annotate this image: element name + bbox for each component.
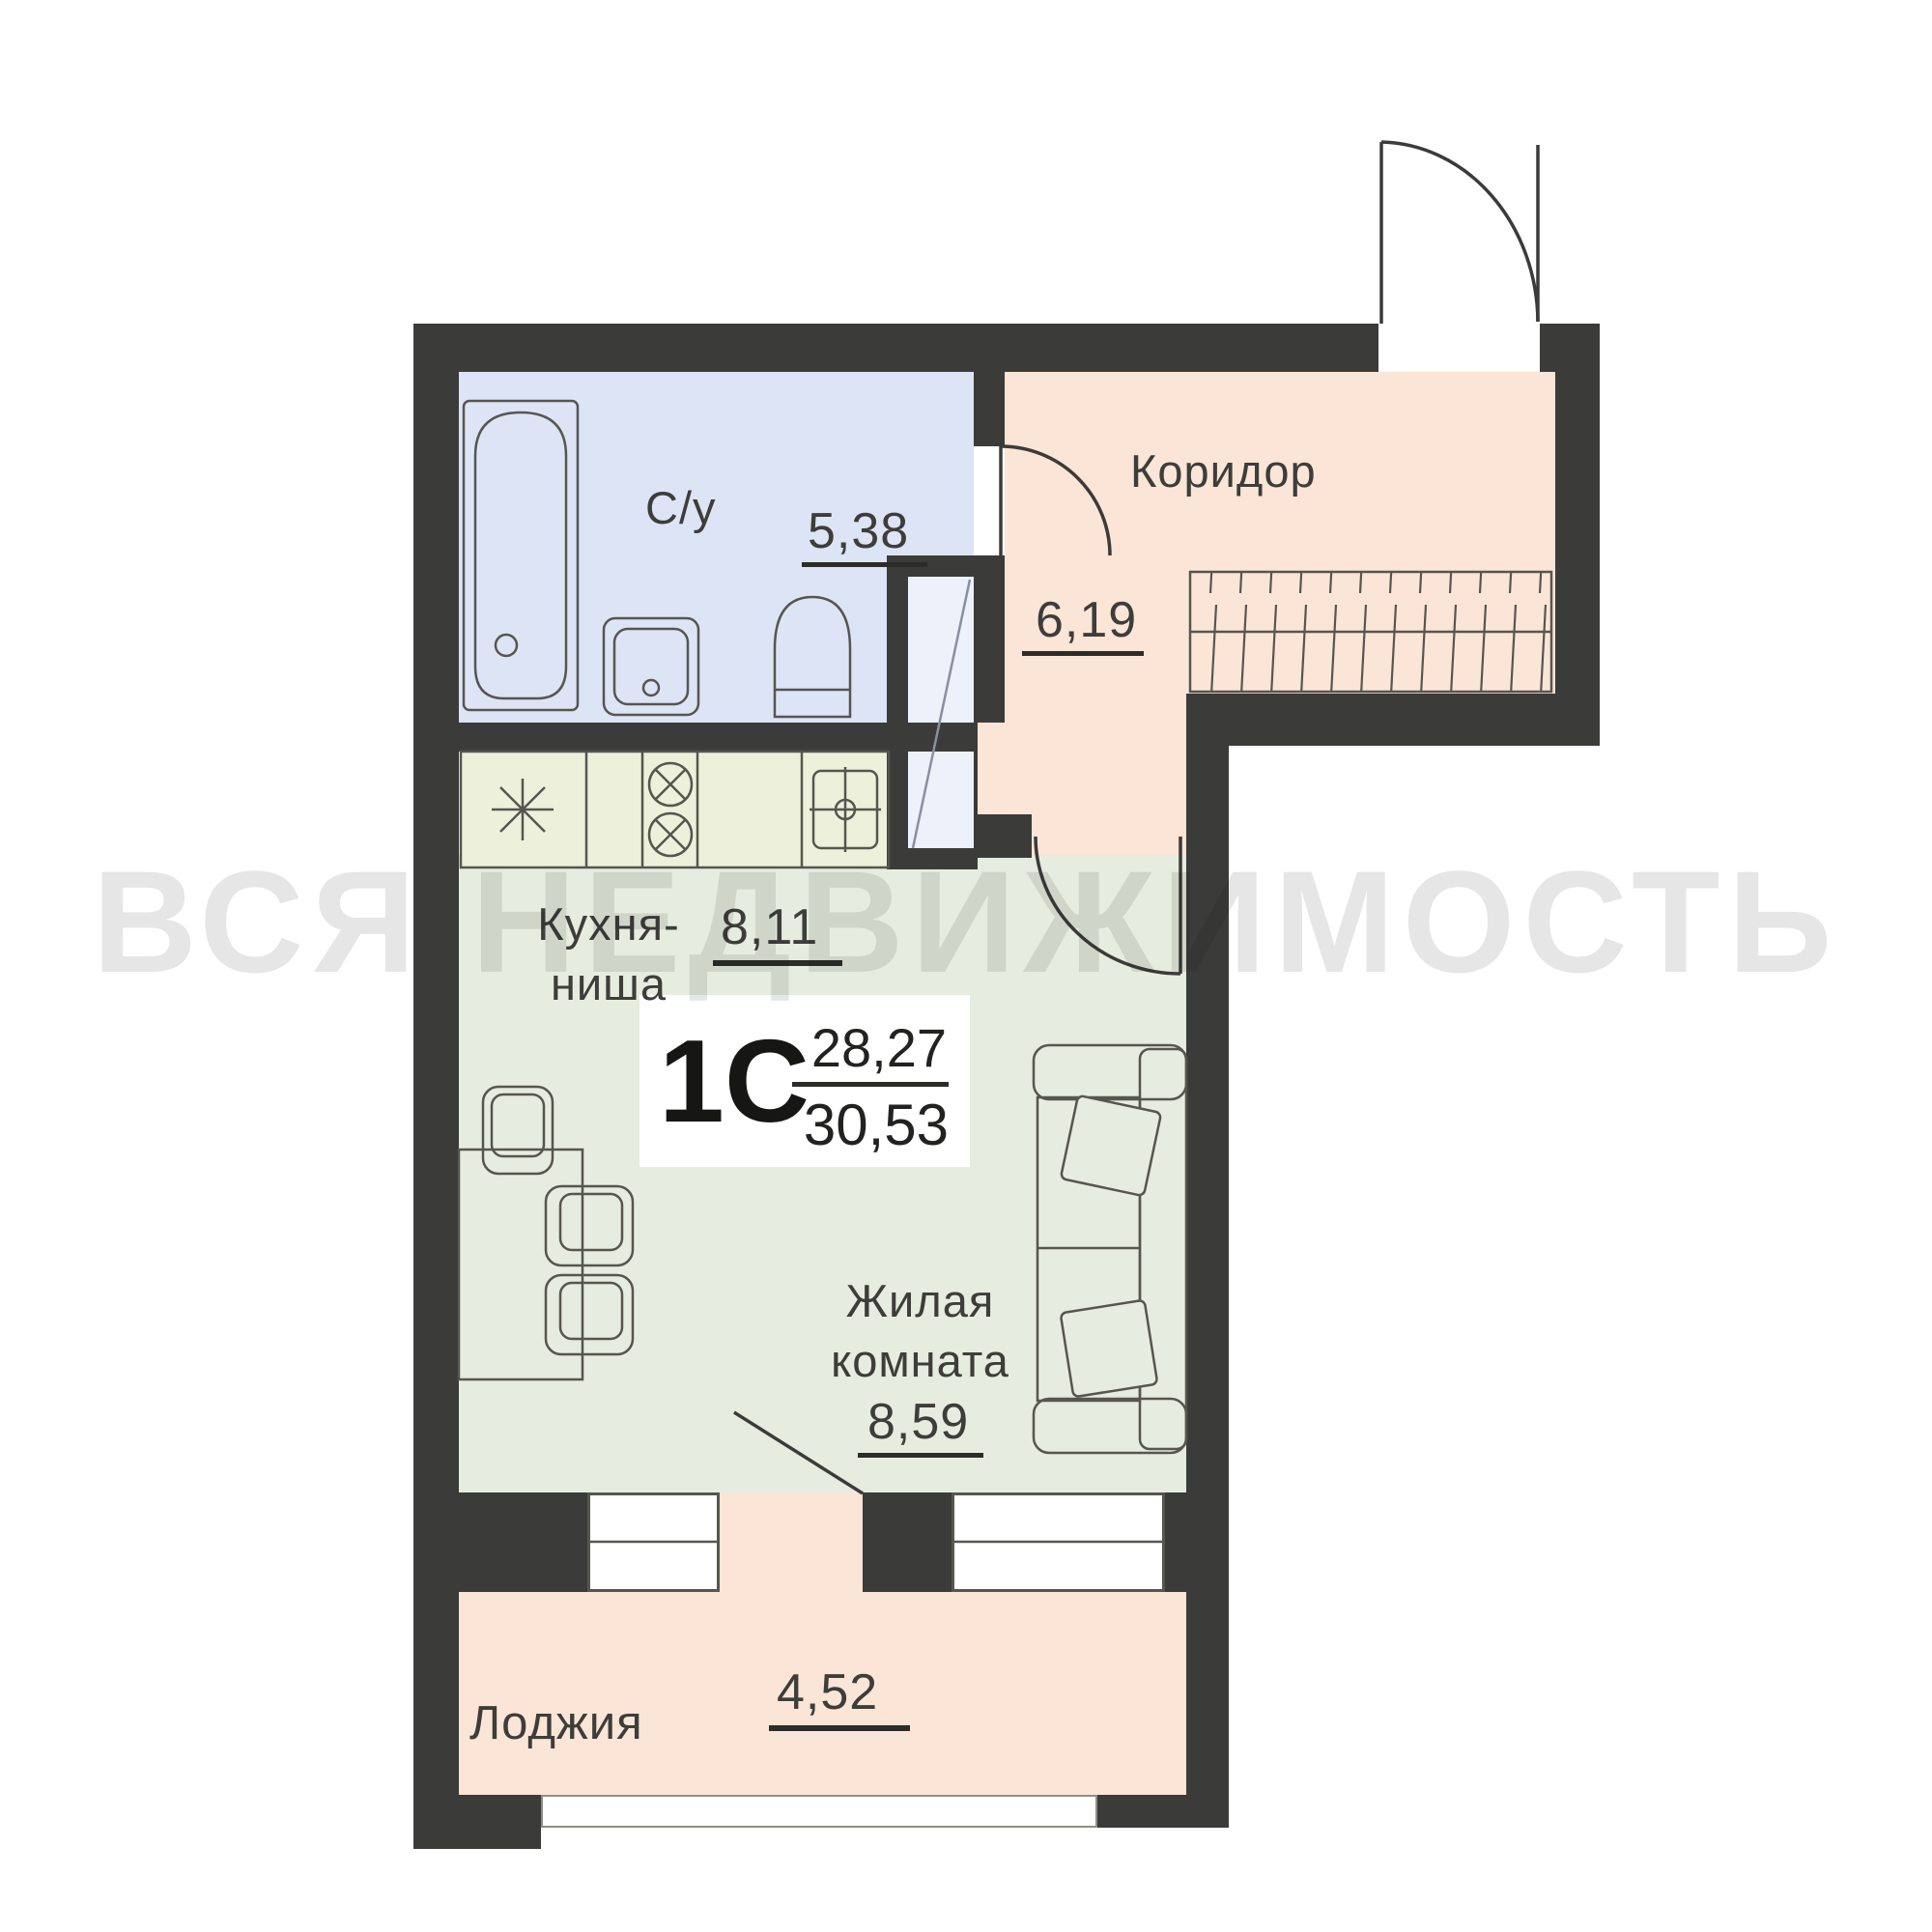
bathroom-area-underline bbox=[802, 562, 927, 567]
fridge-asterisk-icon bbox=[492, 779, 554, 840]
loggia-area-underline bbox=[769, 1725, 910, 1731]
chair-icon bbox=[546, 1275, 633, 1354]
wardrobe-hatch-icon bbox=[1190, 572, 1551, 692]
bathroom-label: С/у bbox=[645, 481, 717, 534]
living-label: Жилая комната bbox=[811, 1271, 1029, 1391]
pillow-icon bbox=[1061, 1300, 1158, 1398]
living-area-underline bbox=[858, 1453, 983, 1458]
chair-icon bbox=[546, 1186, 633, 1265]
bathroom-area: 5,38 bbox=[808, 502, 909, 560]
loggia-label: Лоджия bbox=[469, 1696, 643, 1750]
living-area: 8,59 bbox=[867, 1393, 969, 1451]
living-label-line2: комната bbox=[811, 1331, 1029, 1391]
toilet-icon bbox=[775, 597, 850, 717]
shaft-diagonal-line bbox=[913, 580, 970, 848]
corridor-area-underline bbox=[1022, 651, 1144, 656]
bathtub-icon bbox=[464, 401, 578, 710]
floor-plan-canvas: С/у 5,38 Коридор 6,19 Кухня- ниша 8,11 1… bbox=[0, 0, 1932, 1932]
corridor-label: Коридор bbox=[1130, 444, 1317, 497]
watermark: ВСЯ НЕДВИЖИМОСТЬ bbox=[93, 838, 1840, 1006]
bathroom-door-arc-icon bbox=[1001, 446, 1110, 555]
entrance-door-arc-icon bbox=[1381, 142, 1538, 324]
corridor-area: 6,19 bbox=[1036, 591, 1137, 649]
loggia-area: 4,52 bbox=[777, 1663, 878, 1721]
pillow-icon bbox=[1061, 1095, 1161, 1196]
washbasin-icon bbox=[604, 618, 698, 715]
balcony-door-leaf-icon bbox=[734, 1412, 863, 1493]
chair-icon bbox=[483, 1087, 553, 1174]
living-label-line1: Жилая bbox=[811, 1271, 1029, 1331]
